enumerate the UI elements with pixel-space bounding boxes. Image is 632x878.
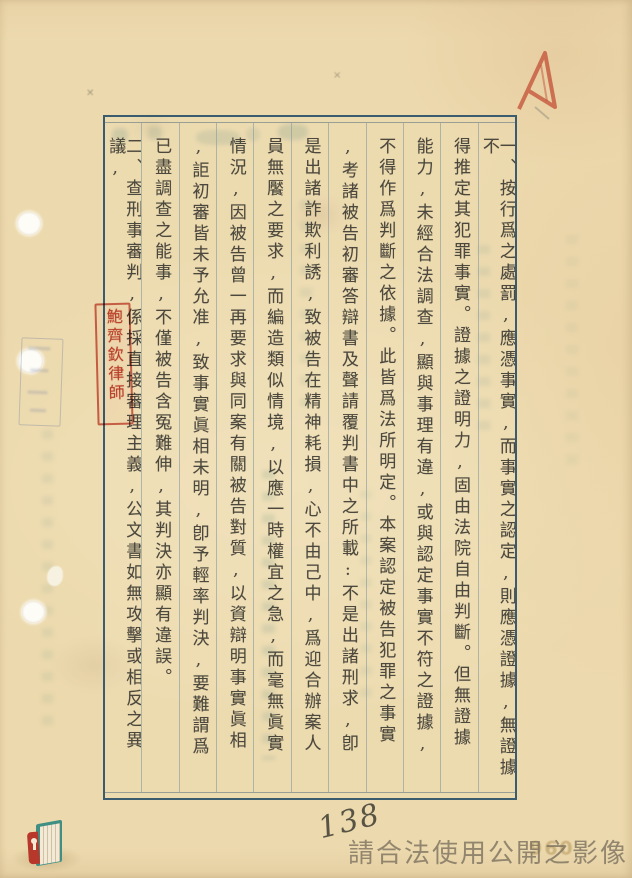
text-column-4: 不得作爲判斷之依據。此皆爲法所明定。本案認定被告犯罪之事實 — [366, 123, 403, 792]
punch-hole — [22, 601, 45, 623]
column-text: ,詎初審皆未予允准,致事實眞相未明,卽予輕率判決,要難謂爲 — [189, 137, 206, 758]
column-text: 已盡調查之能事,不僅被告含冤難伸,其判決亦顯有違誤。 — [152, 137, 169, 689]
archive-book-logo-icon — [10, 820, 86, 876]
text-column-3: 能力,未經合法調查,顯與事理有違,或與認定事實不符之證據, — [403, 123, 440, 792]
pencil-mark: ✕ — [86, 88, 94, 99]
text-column-10: 已盡調查之能事,不僅被告含冤難伸,其判決亦顯有違誤。 — [141, 123, 178, 792]
lawyer-seal-stamp: 鮑齊欽律師 — [94, 303, 133, 426]
text-column-1: 一、按行爲之處罰,應憑事實,而事實之認定,則應憑證據,無證據不 — [478, 123, 515, 792]
corner-red-stamp-icon — [505, 45, 571, 123]
text-column-6: 是出諸詐欺利誘,致被告在精神耗損,心不由己中,爲迎合辦案人 — [291, 123, 328, 792]
scanned-document-page: { "page": { "page_number_handwritten": "… — [0, 0, 632, 878]
column-text: 得推定其犯罪事實。證據之證明力,固由法院自由判斷。但無證據 — [451, 137, 468, 749]
usage-watermark: 請合法使用公開之影像 — [348, 833, 628, 870]
column-text: 能力,未經合法調查,顯與事理有違,或與認定事實不符之證據, — [414, 137, 431, 758]
logo-keyhole — [31, 838, 37, 844]
text-column-7: 員無饜之要求,而編造類似情境,以應一時權宜之急,而毫無眞實 — [253, 123, 290, 792]
column-text: 員無饜之要求,而編造類似情境,以應一時權宜之急,而毫無眞實 — [264, 137, 281, 755]
pencil-mark: × — [333, 70, 341, 81]
column-text: 一、按行爲之處罰,應憑事實,而事實之認定,則應憑證據,無證據不 — [480, 137, 514, 792]
paper-abrasion — [47, 566, 63, 586]
punch-hole — [17, 212, 41, 235]
lawyer-seal-text: 鮑齊欽律師 — [104, 305, 123, 403]
text-column-8: 情況,因被告曾一再要求與同案有關被告對質,以資辯明事實眞相 — [216, 123, 253, 792]
text-column-9: ,詎初審皆未予允准,致事實眞相未明,卽予輕率判決,要難謂爲 — [179, 123, 216, 792]
column-text: 二、查刑事審判,係採直接審理主義,公文書如無攻擊或相反之異議, — [106, 137, 140, 792]
ink-bleedthrough-smudge — [566, 235, 578, 475]
column-text: 不得作爲判斷之依據。此皆爲法所明定。本案認定被告犯罪之事實 — [376, 137, 393, 746]
logo-book-pages — [40, 823, 60, 865]
text-column-11: 二、查刑事審判,係採直接審理主義,公文書如無攻擊或相反之異議, — [105, 123, 141, 792]
column-text: 情況,因被告曾一再要求與同案有關被告對質,以資辯明事實眞相 — [227, 137, 244, 752]
column-text: ,考諸被告初審答辯書及聲請覆判書中之所載:不是出諸刑求,卽 — [339, 137, 356, 755]
faint-registry-stamp — [18, 337, 63, 426]
text-column-5: ,考諸被告初審答辯書及聲請覆判書中之所載:不是出諸刑求,卽 — [328, 123, 365, 792]
column-text: 是出諸詐欺利誘,致被告在精神耗損,心不由己中,爲迎合辦案人 — [302, 137, 319, 755]
text-columns: 一、按行爲之處罰,應憑事實,而事實之認定,則應憑證據,無證據不得推定其犯罪事實。… — [105, 123, 515, 792]
document-text-frame: 一、按行爲之處罰,應憑事實,而事實之認定,則應憑證據,無證據不得推定其犯罪事實。… — [103, 115, 517, 800]
text-column-2: 得推定其犯罪事實。證據之證明力,固由法院自由判斷。但無證據 — [440, 123, 477, 792]
